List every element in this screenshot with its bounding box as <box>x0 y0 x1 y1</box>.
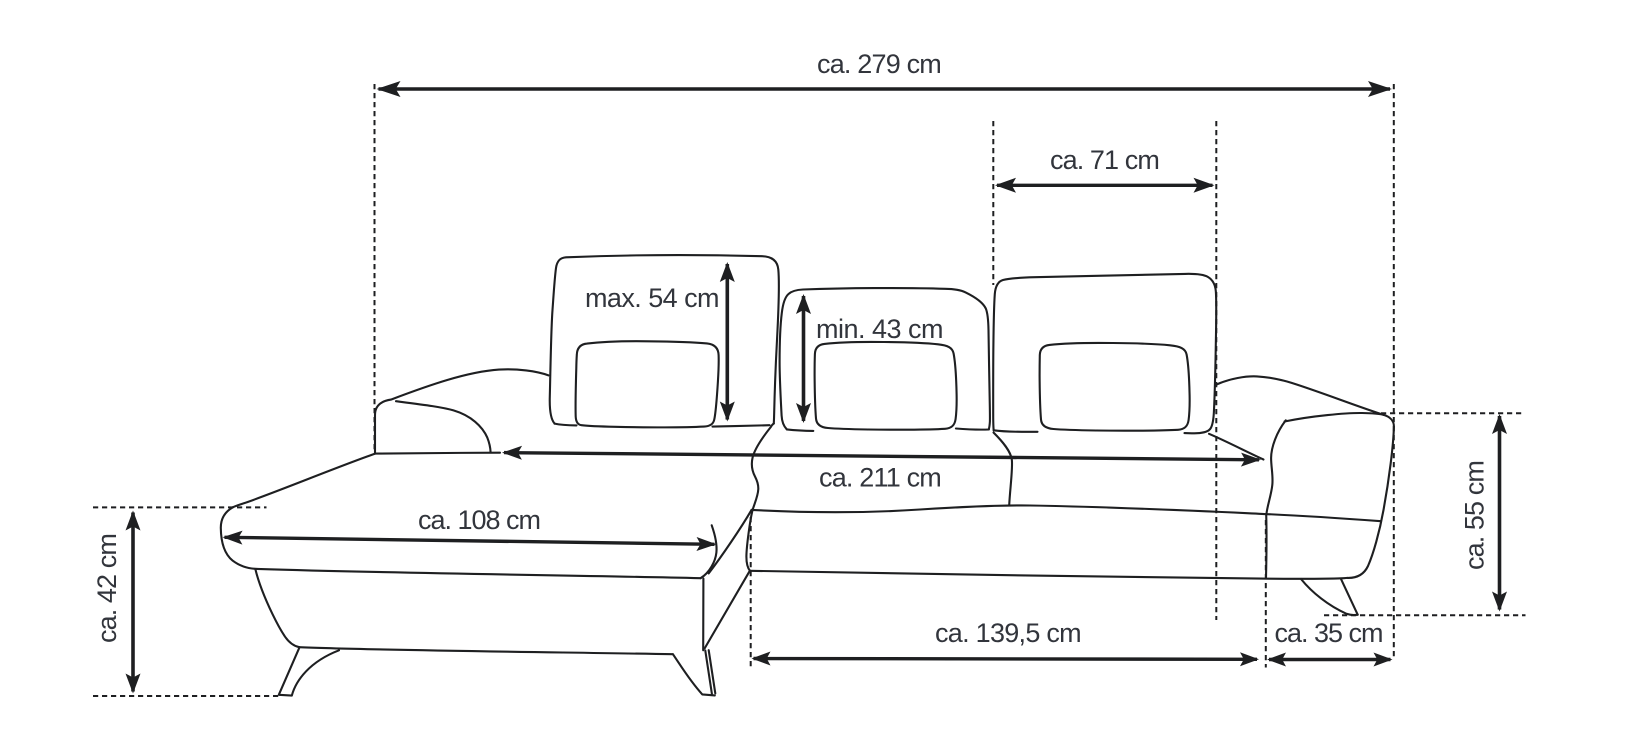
svg-text:ca. 279 cm: ca. 279 cm <box>817 49 941 79</box>
svg-text:max. 54 cm: max. 54 cm <box>585 283 719 313</box>
svg-text:ca. 35 cm: ca. 35 cm <box>1274 618 1382 648</box>
svg-text:ca. 55 cm: ca. 55 cm <box>1460 461 1490 570</box>
svg-text:min. 43 cm: min. 43 cm <box>816 314 943 344</box>
svg-text:ca. 139,5 cm: ca. 139,5 cm <box>935 618 1081 648</box>
svg-text:ca. 211 cm: ca. 211 cm <box>819 463 941 493</box>
svg-text:ca. 108 cm: ca. 108 cm <box>418 505 540 535</box>
svg-text:ca. 42 cm: ca. 42 cm <box>92 534 122 643</box>
svg-text:ca. 71 cm: ca. 71 cm <box>1050 145 1159 175</box>
